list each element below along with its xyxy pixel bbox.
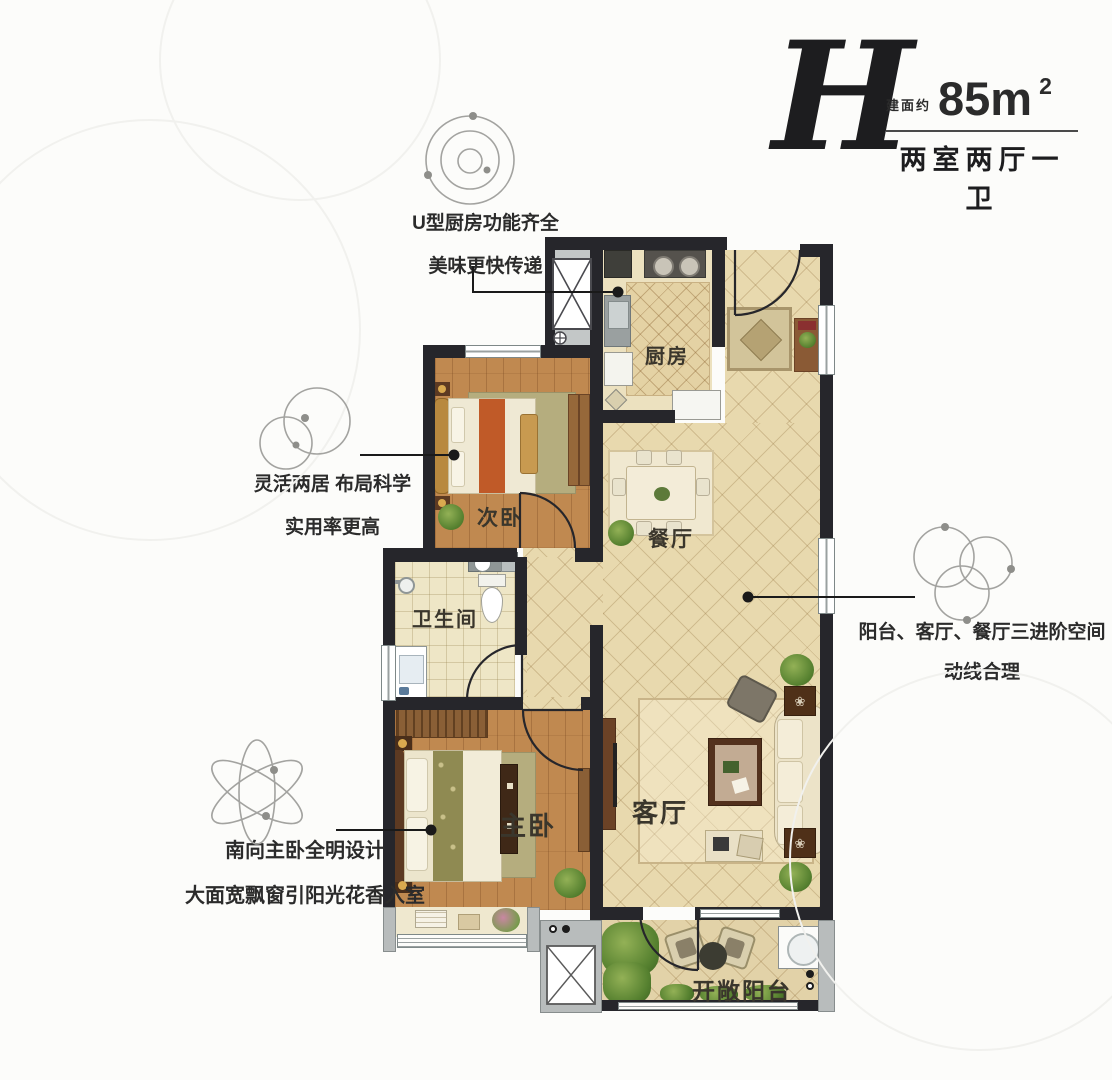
lamp	[398, 739, 407, 748]
table-plant-box	[723, 761, 739, 773]
double-circles-icon	[260, 388, 350, 469]
triple-circles-icon	[914, 523, 1015, 624]
annotation-master-line2: 大面宽飘窗引阳光花香入室	[160, 879, 450, 908]
pillow	[406, 758, 428, 812]
laptop	[713, 837, 729, 851]
washer-drum	[787, 933, 820, 966]
wall	[712, 250, 725, 347]
wall	[590, 237, 603, 557]
annotation-layout: 灵活两居 布局科学 实用率更高	[235, 469, 430, 539]
dining-chair	[612, 478, 626, 496]
dining-chair	[666, 450, 682, 465]
balcony-washer	[778, 926, 822, 969]
washer-panel	[399, 687, 409, 695]
annotation-layout-line1: 灵活两居 布局科学	[235, 469, 430, 496]
dining-chair	[636, 450, 652, 465]
dresser-knob	[507, 783, 513, 789]
kitchen-label: 厨房	[617, 340, 717, 369]
entry-plant	[799, 332, 816, 348]
master-wardrobe	[396, 708, 488, 738]
second-bedroom-label: 次卧	[450, 502, 550, 532]
annotation-flow-line2: 动线合理	[857, 657, 1107, 684]
wall	[383, 548, 517, 562]
living-side-window	[818, 538, 835, 614]
wall	[603, 907, 643, 920]
wall	[575, 548, 603, 562]
stool	[736, 834, 763, 860]
kitchen-tile-rug	[626, 282, 710, 396]
orbit-circles-icon	[424, 112, 514, 204]
toilet-tank	[478, 574, 506, 587]
living-plant	[779, 862, 812, 892]
entry-side-window	[818, 305, 835, 375]
floor-plan-page: H 建面约 85m 2 两室两厅一卫 U型厨房功能齐全 美味更快传递 灵活两居 …	[0, 0, 1112, 1080]
wall	[603, 410, 675, 423]
dining-label: 餐厅	[621, 523, 721, 553]
bed2-runner	[479, 399, 505, 493]
side-table: ❀	[784, 828, 816, 858]
living-plant	[780, 654, 814, 686]
balcony-table	[699, 942, 727, 970]
bedroom2-window	[465, 345, 541, 358]
side-table: ❀	[784, 686, 816, 716]
table-centerpiece	[654, 487, 670, 501]
sofa-cushion	[777, 719, 803, 759]
bedroom2-wardrobe	[568, 394, 590, 486]
header-divider	[886, 130, 1078, 132]
area-sup: 2	[1039, 73, 1052, 122]
stove	[644, 250, 706, 278]
living-window	[700, 909, 780, 918]
bay-tray	[458, 914, 480, 930]
flower-icon: ❀	[795, 836, 806, 851]
pillow	[451, 451, 465, 487]
flower-icon: ❀	[795, 694, 806, 709]
flue-dot	[562, 925, 570, 933]
bay-side	[383, 907, 396, 952]
bay-flowers	[492, 908, 520, 932]
wall	[515, 557, 527, 655]
annotation-layout-line2: 实用率更高	[235, 512, 430, 539]
annotation-master: 南向主卧全明设计 大面宽飘窗引阳光花香入室	[160, 834, 450, 908]
annotation-flow-line1: 阳台、客厅、餐厅三进阶空间	[857, 617, 1107, 644]
living-label: 客厅	[600, 793, 720, 830]
shower-head	[398, 577, 415, 594]
bay-side	[527, 907, 540, 952]
lamp	[438, 385, 446, 393]
flue-dot	[549, 925, 557, 933]
bed2-bench	[520, 414, 538, 474]
living-desk	[705, 830, 763, 862]
annotation-kitchen-line2: 美味更快传递	[393, 251, 578, 278]
annotation-kitchen-line1: U型厨房功能齐全	[393, 208, 578, 235]
entry-rug	[727, 307, 792, 371]
annotation-flow: 阳台、客厅、餐厅三进阶空间 动线合理	[857, 617, 1107, 684]
master-bedroom-label: 主卧	[468, 806, 588, 843]
flue-shaft	[540, 920, 602, 1013]
annotation-kitchen: U型厨房功能齐全 美味更快传递	[393, 208, 578, 278]
area-value: 85m	[938, 75, 1032, 122]
master-bay-window	[397, 934, 527, 948]
balcony-plants	[603, 962, 651, 1004]
sofa-cushion	[777, 761, 803, 803]
bay-books	[415, 910, 447, 928]
dining-chair	[696, 478, 710, 496]
entry-rug-medallion	[740, 319, 782, 361]
chair-seat	[675, 937, 698, 960]
area-label: 建面约	[886, 95, 931, 122]
sink-basin	[608, 301, 629, 329]
atom-ellipses-icon	[203, 740, 310, 844]
master-plant	[554, 868, 586, 898]
bathroom-window	[381, 645, 396, 701]
stove-burner	[679, 256, 700, 277]
bath-washer	[393, 646, 427, 698]
dining-table	[626, 466, 696, 520]
annotation-master-line1: 南向主卧全明设计	[160, 834, 450, 863]
washer-drum	[399, 655, 424, 684]
books	[798, 321, 816, 330]
wall	[590, 625, 603, 697]
pillow	[451, 407, 465, 443]
layout-type: 两室两厅一卫	[884, 138, 1080, 216]
wall	[383, 697, 523, 710]
fridge	[672, 390, 721, 420]
balcony-label: 开敞阳台	[662, 972, 822, 1006]
bathroom-label: 卫生间	[384, 603, 506, 632]
kitchen-counter-corner	[604, 250, 632, 278]
stove-burner	[653, 256, 674, 277]
area-row: 建面约 85m 2	[886, 70, 1052, 122]
